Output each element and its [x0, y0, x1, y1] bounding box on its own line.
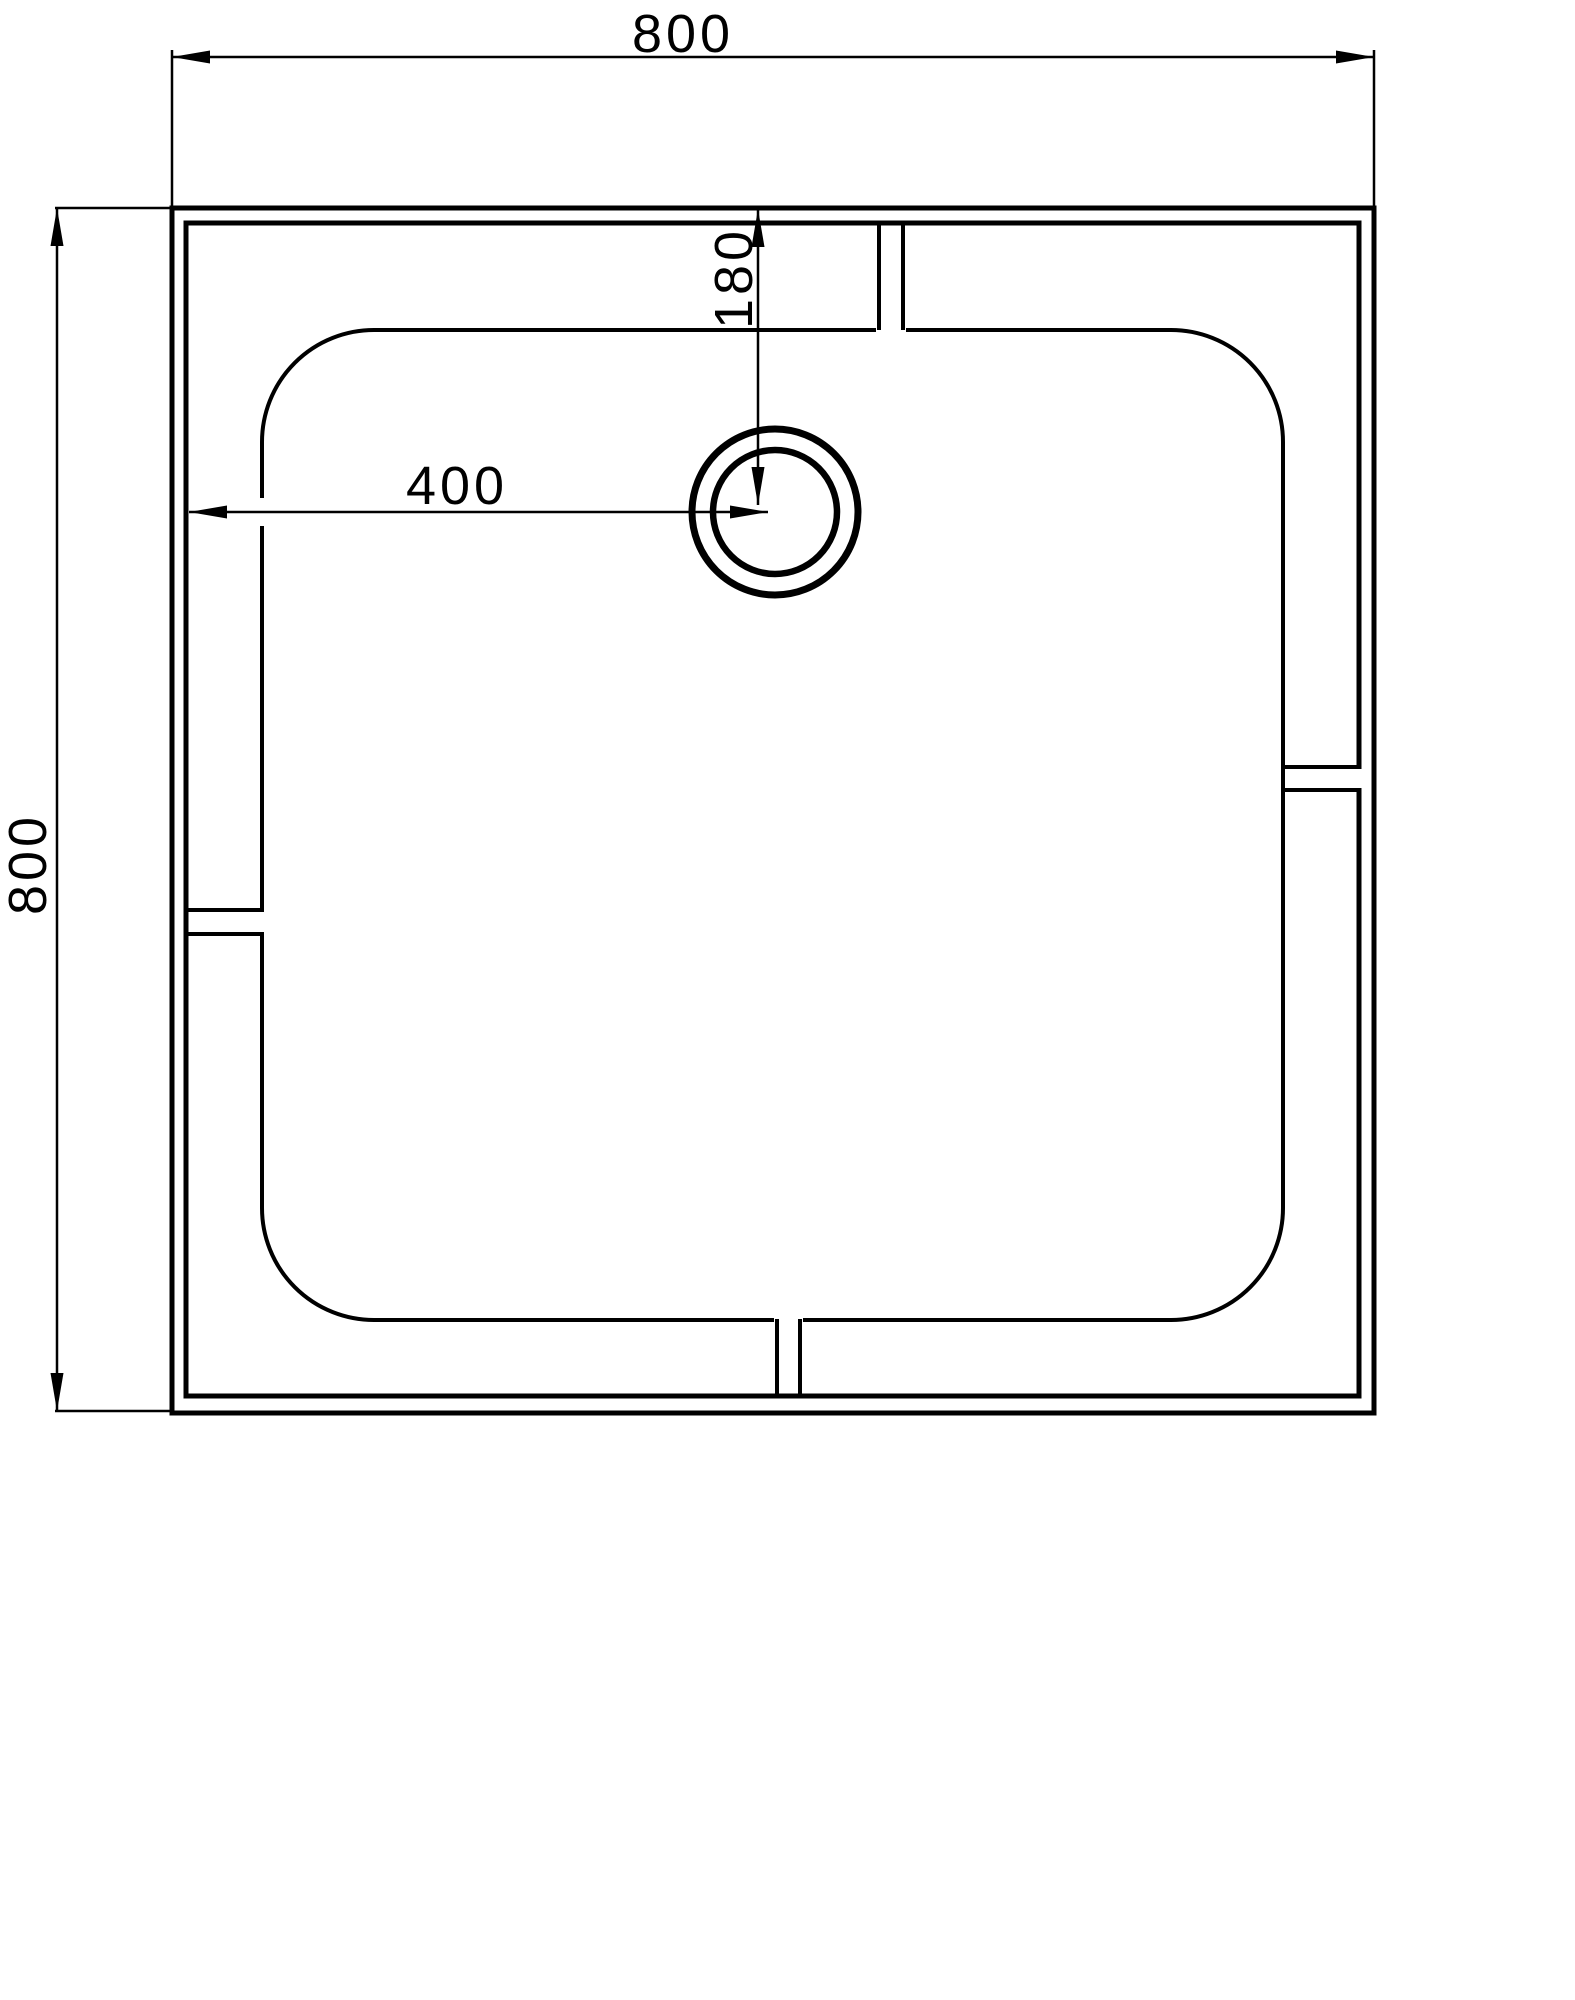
- arrowhead-right: [730, 506, 768, 519]
- arrowhead-down: [51, 1373, 64, 1411]
- technical-drawing: 800 800 400 180: [0, 0, 1575, 2000]
- inner-frame-rect: [186, 223, 1359, 1396]
- tray-outline: [172, 208, 1374, 1413]
- dimension-label-drain-from-left: 400: [406, 456, 508, 516]
- dimension-drain-from-left: 400: [189, 456, 768, 519]
- dimension-label-drain-from-top: 180: [704, 227, 764, 329]
- outer-frame-rect: [172, 208, 1374, 1413]
- arrowhead-left: [189, 506, 227, 519]
- dimension-label-overall-width: 800: [632, 4, 734, 64]
- drawing-canvas: 800 800 400 180: [0, 0, 1575, 2000]
- arrowhead-left: [172, 51, 210, 64]
- gap-left-tab: [256, 912, 268, 932]
- gap-right-tab: [1353, 769, 1365, 788]
- rim-tabs: [186, 223, 1359, 1396]
- dimension-overall-width: 800: [172, 4, 1374, 206]
- dimension-overall-height: 800: [0, 208, 170, 1411]
- arrowhead-down: [752, 467, 765, 505]
- arrowhead-up: [51, 208, 64, 246]
- dimension-label-overall-height: 800: [0, 813, 58, 915]
- arrowhead-right: [1336, 51, 1374, 64]
